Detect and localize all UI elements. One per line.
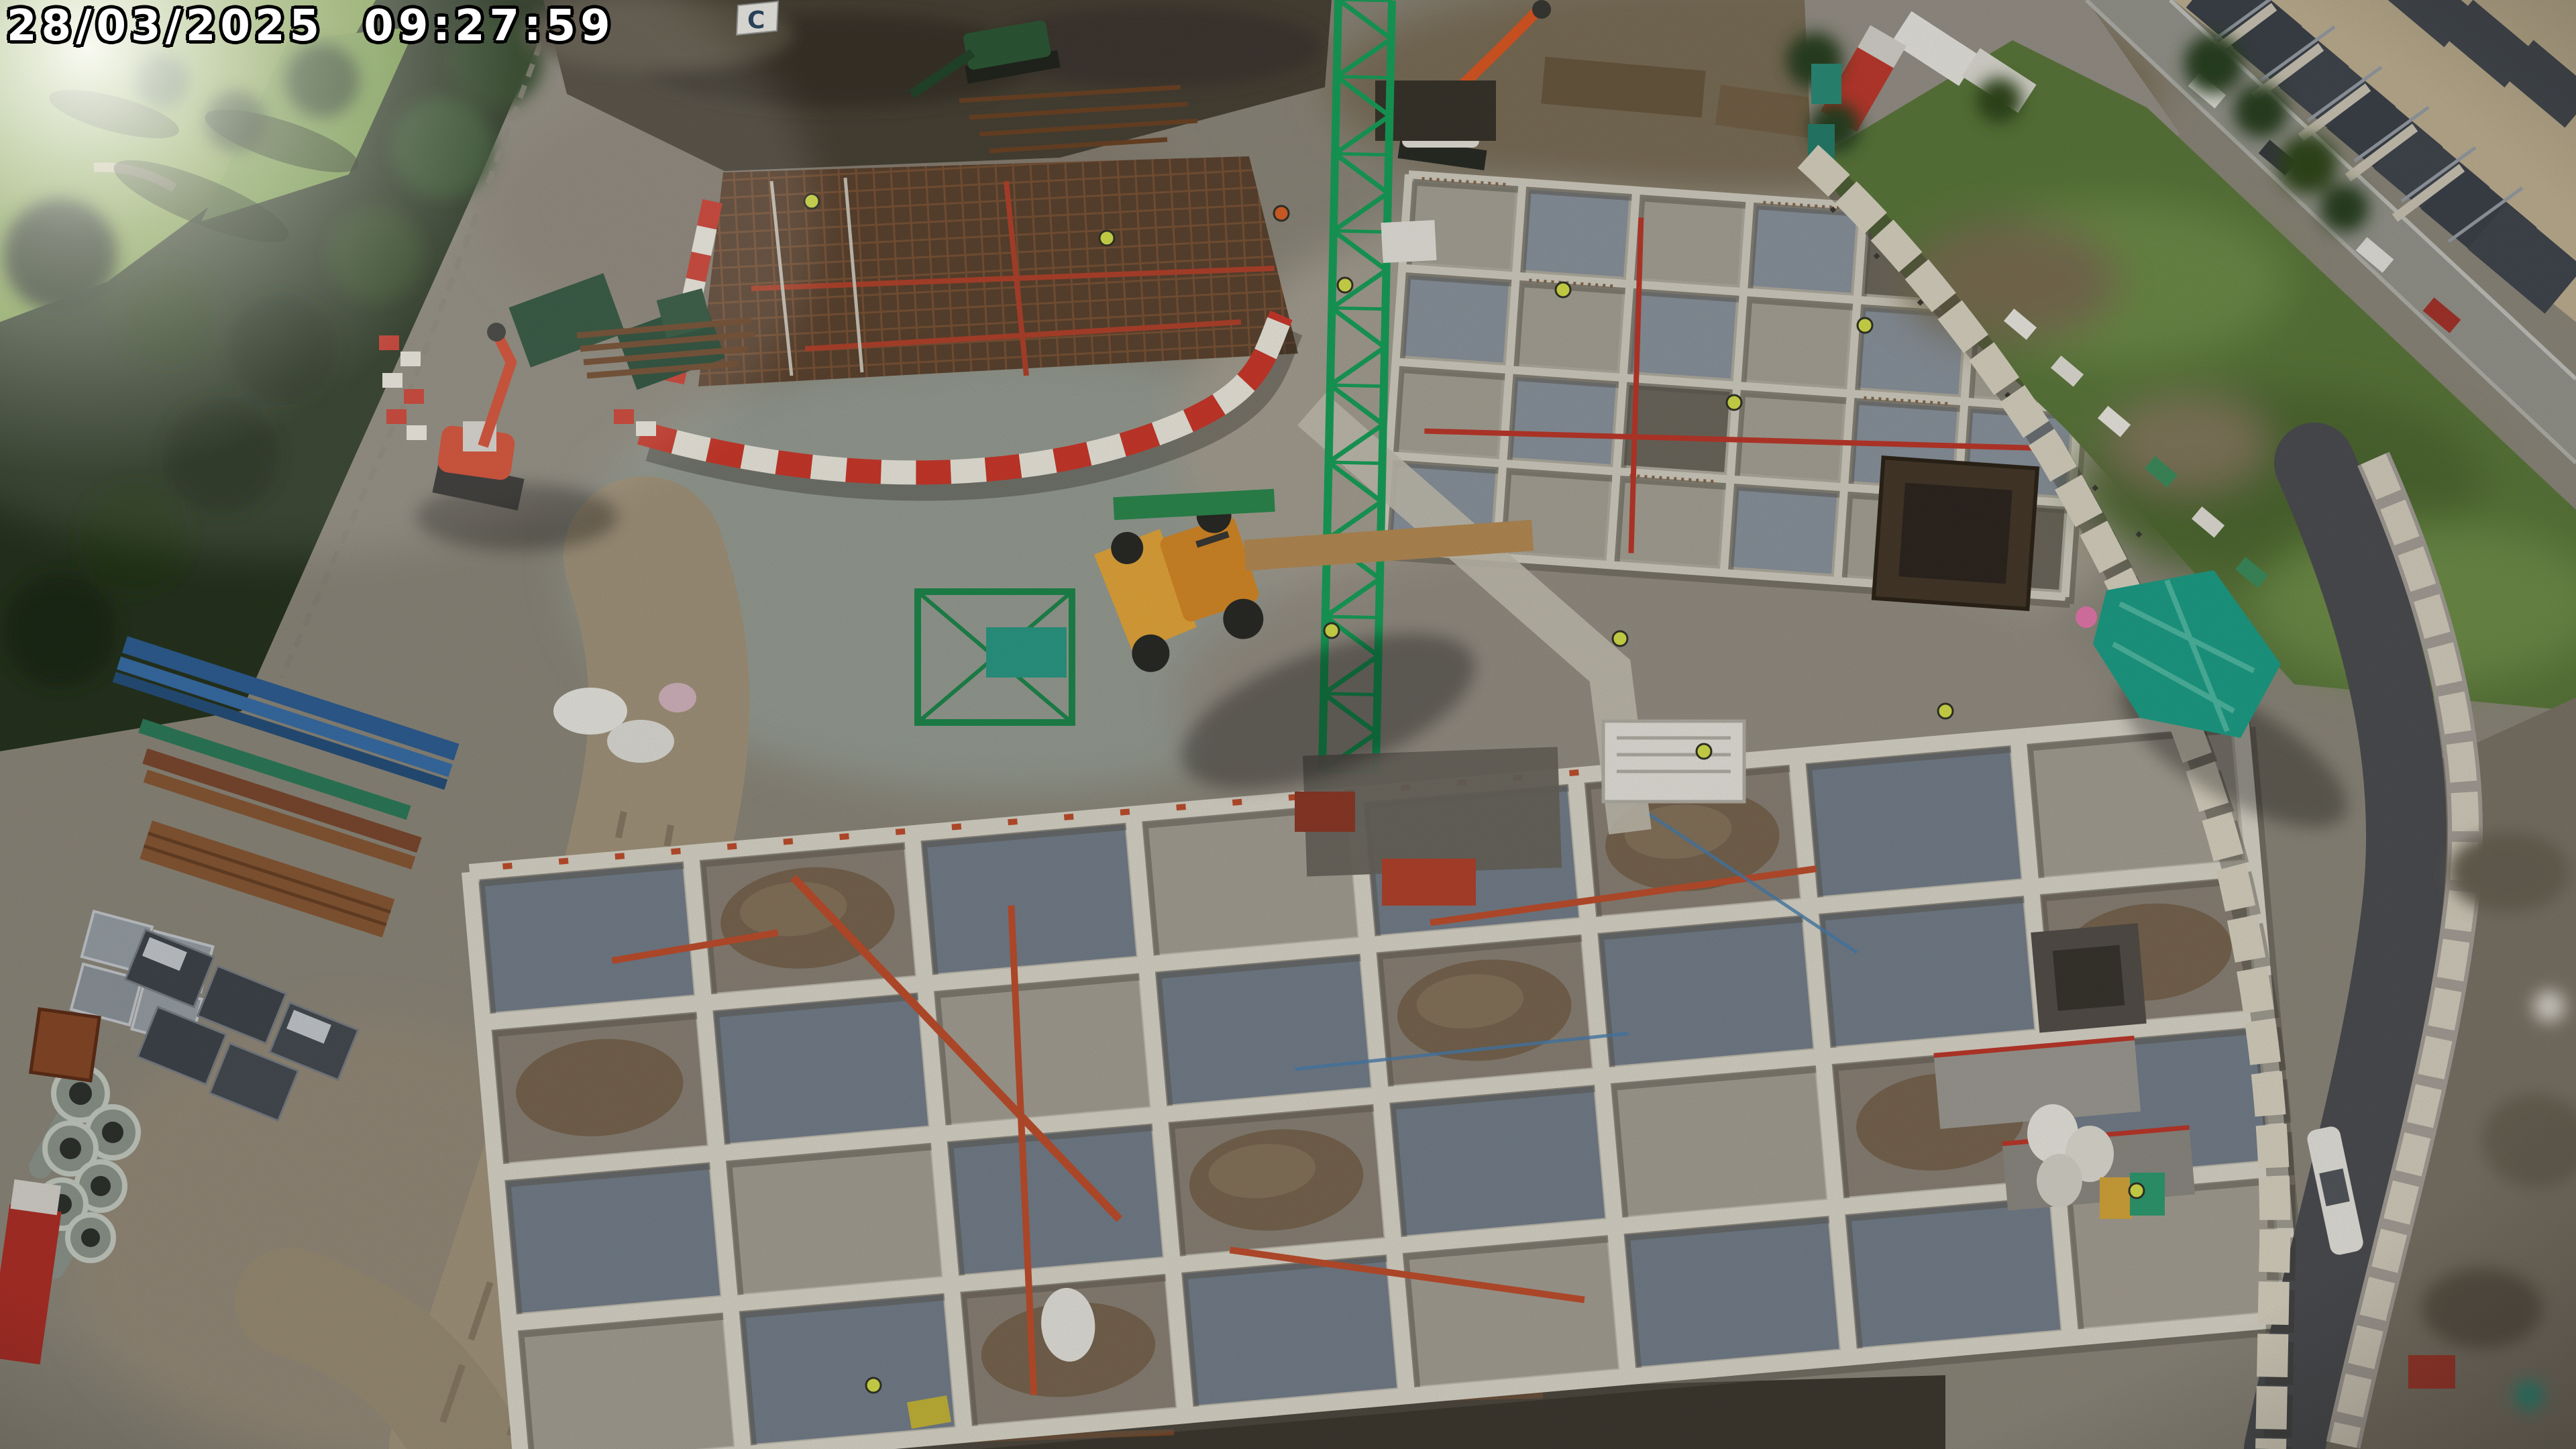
construction-webcam-photo: C — [0, 0, 2576, 1449]
timestamp-overlay: 28/03/2025 09:27:59 — [7, 0, 615, 52]
vignette — [0, 0, 2576, 1449]
photo-overlays — [0, 0, 2576, 1449]
